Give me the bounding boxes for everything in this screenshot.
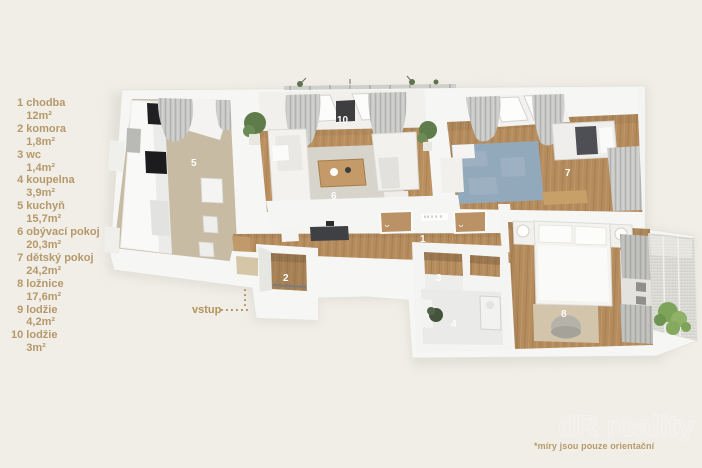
svg-text:1: 1 bbox=[420, 234, 426, 245]
svg-text:2: 2 bbox=[283, 273, 289, 284]
svg-text:7: 7 bbox=[565, 168, 571, 179]
svg-text:8: 8 bbox=[561, 309, 567, 320]
svg-text:10: 10 bbox=[337, 115, 349, 126]
svg-text:4: 4 bbox=[451, 319, 457, 330]
svg-text:5: 5 bbox=[191, 158, 197, 169]
svg-text:dR reality: dR reality bbox=[558, 410, 695, 443]
svg-text:3: 3 bbox=[436, 273, 442, 284]
